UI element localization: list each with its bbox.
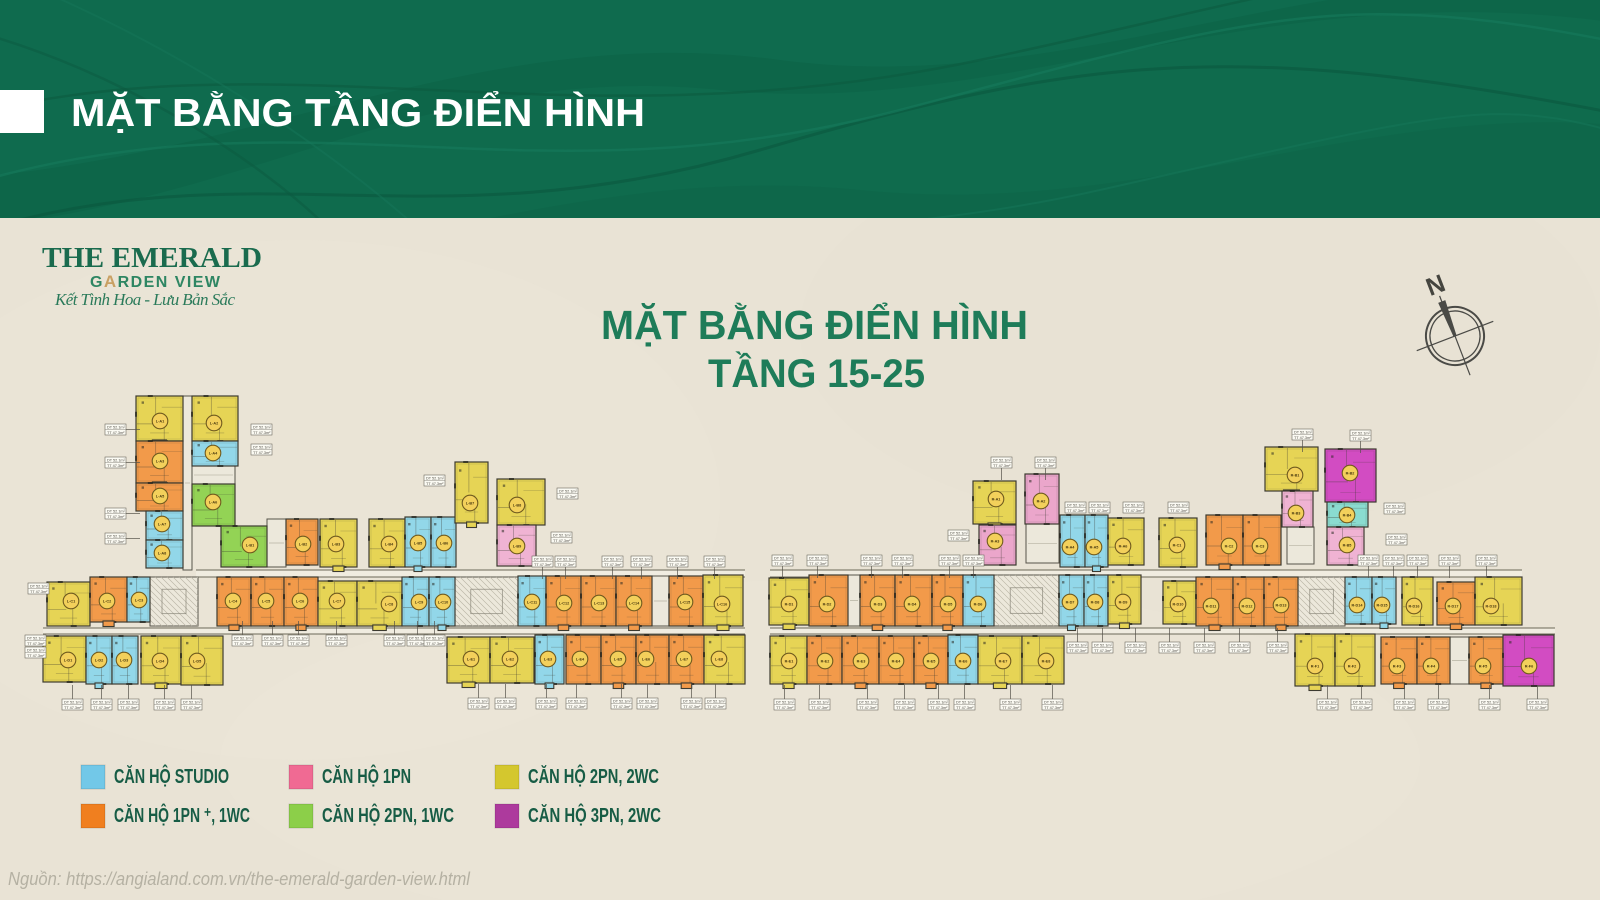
svg-text:R-E6: R-E6 (959, 660, 968, 664)
svg-text:L-C4: L-C4 (229, 600, 238, 604)
svg-text:TT 47.3m²: TT 47.3m² (553, 539, 571, 543)
svg-text:DT 52.1m²: DT 52.1m² (1161, 644, 1180, 648)
svg-text:L-C9: L-C9 (415, 601, 423, 605)
svg-text:DT 52.1m²: DT 52.1m² (107, 426, 126, 430)
svg-text:TT 47.3m²: TT 47.3m² (107, 540, 125, 544)
svg-text:TT 47.3m²: TT 47.3m² (1231, 649, 1249, 653)
svg-text:DT 52.1m²: DT 52.1m² (1353, 701, 1372, 705)
svg-text:L-B3: L-B3 (332, 543, 340, 547)
svg-text:L-E2: L-E2 (506, 658, 514, 662)
svg-text:TT 47.3m²: TT 47.3m² (941, 562, 959, 566)
svg-text:R-F6: R-F6 (1525, 665, 1533, 669)
svg-text:DT 52.1m²: DT 52.1m² (183, 701, 202, 705)
svg-text:L-A1: L-A1 (156, 420, 164, 424)
svg-text:R-D10: R-D10 (1173, 603, 1184, 607)
svg-text:TT 47.3m²: TT 47.3m² (1441, 562, 1459, 566)
svg-text:DT 52.1m²: DT 52.1m² (613, 700, 632, 704)
svg-text:DT 52.1m²: DT 52.1m² (956, 701, 975, 705)
svg-text:TT 47.3m²: TT 47.3m² (1294, 436, 1312, 440)
svg-text:L-A5: L-A5 (156, 495, 164, 499)
svg-text:DT 52.1m²: DT 52.1m² (30, 585, 49, 589)
svg-text:DT 52.1m²: DT 52.1m² (950, 532, 969, 536)
svg-text:DT 52.1m²: DT 52.1m² (1125, 504, 1144, 508)
svg-text:DT 52.1m²: DT 52.1m² (965, 557, 984, 561)
svg-text:L-C6: L-C6 (296, 600, 304, 604)
svg-text:TT 47.3m²: TT 47.3m² (811, 706, 829, 710)
svg-text:TT 47.3m²: TT 47.3m² (1388, 541, 1406, 545)
svg-text:L-C2: L-C2 (103, 600, 111, 604)
svg-text:R-D5: R-D5 (944, 603, 953, 607)
svg-text:TT 47.3m²: TT 47.3m² (27, 642, 45, 646)
svg-text:DT 52.1m²: DT 52.1m² (941, 557, 960, 561)
svg-text:TT 47.3m²: TT 47.3m² (107, 515, 125, 519)
svg-text:L-B7: L-B7 (466, 502, 474, 506)
svg-text:TT 47.3m²: TT 47.3m² (253, 451, 271, 455)
svg-text:R-D11: R-D11 (1206, 605, 1217, 609)
svg-text:R-E7: R-E7 (999, 660, 1008, 664)
svg-text:R-D8: R-D8 (1091, 601, 1100, 605)
svg-text:DT 52.1m²: DT 52.1m² (1478, 557, 1497, 561)
svg-text:DT 52.1m²: DT 52.1m² (557, 558, 576, 562)
svg-text:DT 52.1m²: DT 52.1m² (93, 701, 112, 705)
svg-text:TT 47.3m²: TT 47.3m² (1069, 649, 1087, 653)
svg-text:R-D4: R-D4 (908, 603, 918, 607)
svg-text:DT 52.1m²: DT 52.1m² (669, 558, 688, 562)
svg-text:DT 52.1m²: DT 52.1m² (774, 557, 793, 561)
svg-text:DT 52.1m²: DT 52.1m² (894, 557, 913, 561)
svg-text:DT 52.1m²: DT 52.1m² (1319, 701, 1338, 705)
svg-text:TT 47.3m²: TT 47.3m² (290, 642, 308, 646)
svg-text:L-E7: L-E7 (680, 658, 688, 662)
svg-text:L-E3: L-E3 (544, 658, 552, 662)
svg-text:R-B3: R-B3 (1292, 512, 1301, 516)
svg-text:DT 52.1m²: DT 52.1m² (253, 426, 272, 430)
svg-text:L-B8: L-B8 (513, 504, 521, 508)
svg-text:R-D18: R-D18 (1486, 605, 1497, 609)
svg-text:DT 52.1m²: DT 52.1m² (1481, 701, 1500, 705)
svg-text:R-D13: R-D13 (1276, 604, 1287, 608)
svg-text:DT 52.1m²: DT 52.1m² (559, 490, 578, 494)
svg-text:TT 47.3m²: TT 47.3m² (1319, 706, 1337, 710)
svg-text:TT 47.3m²: TT 47.3m² (993, 464, 1011, 468)
svg-text:DT 52.1m²: DT 52.1m² (809, 557, 828, 561)
svg-text:DT 52.1m²: DT 52.1m² (1269, 644, 1288, 648)
svg-text:DT 52.1m²: DT 52.1m² (120, 701, 139, 705)
svg-text:TT 47.3m²: TT 47.3m² (1529, 706, 1547, 710)
svg-text:R-D16: R-D16 (1409, 605, 1420, 609)
svg-text:R-A3: R-A3 (991, 540, 1000, 544)
svg-text:L-E8: L-E8 (715, 658, 723, 662)
svg-text:DT 52.1m²: DT 52.1m² (993, 459, 1012, 463)
svg-text:L-D5: L-D5 (193, 660, 201, 664)
svg-text:DT 52.1m²: DT 52.1m² (107, 510, 126, 514)
svg-text:R-A2: R-A2 (1037, 500, 1046, 504)
svg-text:TT 47.3m²: TT 47.3m² (950, 537, 968, 541)
svg-text:L-D4: L-D4 (156, 660, 165, 664)
svg-text:R-B5: R-B5 (1343, 544, 1352, 548)
svg-text:TT 47.3m²: TT 47.3m² (156, 706, 174, 710)
svg-text:L-B6: L-B6 (440, 542, 448, 546)
svg-text:CĂN HỘ 1PN: CĂN HỘ 1PN (322, 764, 411, 788)
svg-text:DT 52.1m²: DT 52.1m² (386, 637, 405, 641)
svg-text:DT 52.1m²: DT 52.1m² (1294, 431, 1313, 435)
svg-text:TT 47.3m²: TT 47.3m² (896, 706, 914, 710)
svg-text:TT 47.3m²: TT 47.3m² (809, 562, 827, 566)
svg-text:TT 47.3m²: TT 47.3m² (107, 431, 125, 435)
svg-text:DT 52.1m²: DT 52.1m² (1352, 432, 1371, 436)
svg-text:TT 47.3m²: TT 47.3m² (1125, 509, 1143, 513)
svg-text:TT 47.3m²: TT 47.3m² (1481, 706, 1499, 710)
svg-text:DT 52.1m²: DT 52.1m² (1067, 504, 1086, 508)
svg-text:CĂN HỘ 1PN ⁺, 1WC: CĂN HỘ 1PN ⁺, 1WC (114, 803, 250, 827)
svg-text:TT 47.3m²: TT 47.3m² (1161, 649, 1179, 653)
svg-text:DT 52.1m²: DT 52.1m² (107, 535, 126, 539)
svg-text:R-B4: R-B4 (1343, 514, 1353, 518)
svg-text:DT 52.1m²: DT 52.1m² (497, 700, 516, 704)
svg-text:TT 47.3m²: TT 47.3m² (1067, 509, 1085, 513)
svg-text:TT 47.3m²: TT 47.3m² (27, 654, 45, 658)
svg-text:DT 52.1m²: DT 52.1m² (264, 637, 283, 641)
svg-text:DT 52.1m²: DT 52.1m² (426, 637, 445, 641)
svg-text:TT 47.3m²: TT 47.3m² (774, 562, 792, 566)
svg-text:L-C8: L-C8 (385, 603, 393, 607)
svg-text:TT 47.3m²: TT 47.3m² (386, 642, 404, 646)
svg-text:DT 52.1m²: DT 52.1m² (534, 558, 553, 562)
svg-text:DT 52.1m²: DT 52.1m² (568, 700, 587, 704)
svg-text:TT 47.3m²: TT 47.3m² (328, 642, 346, 646)
svg-text:TT 47.3m²: TT 47.3m² (1127, 649, 1145, 653)
svg-text:L-A6: L-A6 (209, 501, 217, 505)
svg-text:L-B2: L-B2 (299, 543, 307, 547)
svg-text:TT 47.3m²: TT 47.3m² (706, 563, 724, 567)
svg-text:R-F1: R-F1 (1311, 665, 1319, 669)
svg-text:R-D2: R-D2 (823, 603, 832, 607)
svg-text:TT 47.3m²: TT 47.3m² (965, 562, 983, 566)
svg-text:DT 52.1m²: DT 52.1m² (706, 558, 725, 562)
svg-text:R-D14: R-D14 (1352, 604, 1364, 608)
svg-text:TT 47.3m²: TT 47.3m² (1091, 509, 1109, 513)
svg-text:DT 52.1m²: DT 52.1m² (1002, 701, 1021, 705)
svg-text:R-F4: R-F4 (1427, 665, 1436, 669)
svg-text:TT 47.3m²: TT 47.3m² (1037, 464, 1055, 468)
svg-text:TT 47.3m²: TT 47.3m² (707, 705, 725, 709)
svg-text:L-E6: L-E6 (642, 658, 650, 662)
svg-text:R-C1: R-C1 (1173, 544, 1182, 548)
svg-text:CĂN HỘ 3PN, 2WC: CĂN HỘ 3PN, 2WC (528, 803, 661, 827)
svg-text:L-C1: L-C1 (67, 600, 75, 604)
svg-text:R-D7: R-D7 (1066, 601, 1075, 605)
svg-text:CĂN HỘ 2PN, 1WC: CĂN HỘ 2PN, 1WC (322, 803, 454, 827)
svg-text:TẦNG 15-25: TẦNG 15-25 (708, 350, 925, 396)
svg-text:TT 47.3m²: TT 47.3m² (538, 705, 556, 709)
svg-text:L-C5: L-C5 (262, 600, 270, 604)
svg-text:DT 52.1m²: DT 52.1m² (896, 701, 915, 705)
svg-text:L-E5: L-E5 (614, 658, 622, 662)
svg-text:R-B1: R-B1 (1291, 474, 1300, 478)
svg-text:DT 52.1m²: DT 52.1m² (1094, 644, 1113, 648)
svg-text:DT 52.1m²: DT 52.1m² (156, 701, 175, 705)
svg-text:R-F5: R-F5 (1479, 665, 1487, 669)
svg-text:L-C16: L-C16 (717, 603, 728, 607)
svg-text:R-A6: R-A6 (1119, 545, 1128, 549)
svg-text:TT 47.3m²: TT 47.3m² (1478, 562, 1496, 566)
svg-text:TT 47.3m²: TT 47.3m² (107, 464, 125, 468)
svg-text:DT 52.1m²: DT 52.1m² (234, 637, 253, 641)
svg-text:TT 47.3m²: TT 47.3m² (1352, 437, 1370, 441)
svg-text:R-D17: R-D17 (1448, 605, 1459, 609)
svg-text:DT 52.1m²: DT 52.1m² (1385, 557, 1404, 561)
svg-text:R-D3: R-D3 (874, 603, 883, 607)
svg-text:GARDEN VIEW: GARDEN VIEW (90, 272, 221, 291)
svg-text:DT 52.1m²: DT 52.1m² (107, 459, 126, 463)
svg-text:DT 52.1m²: DT 52.1m² (776, 701, 795, 705)
svg-text:L-C12: L-C12 (559, 602, 570, 606)
svg-text:DT 52.1m²: DT 52.1m² (64, 701, 83, 705)
svg-text:R-D6: R-D6 (974, 603, 983, 607)
svg-text:TT 47.3m²: TT 47.3m² (93, 706, 111, 710)
svg-text:CĂN HỘ 2PN, 2WC: CĂN HỘ 2PN, 2WC (528, 764, 659, 788)
svg-text:DT 52.1m²: DT 52.1m² (1386, 505, 1405, 509)
svg-text:DT 52.1m²: DT 52.1m² (1127, 644, 1146, 648)
svg-text:TT 47.3m²: TT 47.3m² (64, 706, 82, 710)
svg-text:L-D2: L-D2 (95, 659, 103, 663)
svg-text:L-A2: L-A2 (210, 422, 218, 426)
svg-text:Kết Tình Hoa - Lưu Bản Sắc: Kết Tình Hoa - Lưu Bản Sắc (54, 290, 235, 309)
svg-text:L-C14: L-C14 (629, 602, 640, 606)
svg-text:R-A1: R-A1 (992, 498, 1001, 502)
svg-text:L-C13: L-C13 (594, 602, 605, 606)
svg-text:TT 47.3m²: TT 47.3m² (930, 706, 948, 710)
svg-text:R-C3: R-C3 (1256, 545, 1265, 549)
svg-text:R-E5: R-E5 (927, 660, 936, 664)
svg-text:R-A5: R-A5 (1090, 546, 1099, 550)
svg-text:TT 47.3m²: TT 47.3m² (1044, 706, 1062, 710)
svg-text:R-D1: R-D1 (785, 603, 794, 607)
svg-text:TT 47.3m²: TT 47.3m² (1396, 706, 1414, 710)
svg-text:L-B4: L-B4 (385, 543, 394, 547)
svg-text:DT 52.1m²: DT 52.1m² (604, 558, 623, 562)
svg-text:L-B5: L-B5 (414, 542, 422, 546)
svg-text:DT 52.1m²: DT 52.1m² (470, 700, 489, 704)
svg-text:R-D15: R-D15 (1377, 604, 1388, 608)
svg-text:TT 47.3m²: TT 47.3m² (1094, 649, 1112, 653)
svg-text:TT 47.3m²: TT 47.3m² (894, 562, 912, 566)
svg-text:TT 47.3m²: TT 47.3m² (1196, 649, 1214, 653)
svg-text:DT 52.1m²: DT 52.1m² (27, 649, 46, 653)
svg-text:TT 47.3m²: TT 47.3m² (497, 705, 515, 709)
svg-text:TT 47.3m²: TT 47.3m² (1385, 562, 1403, 566)
svg-text:R-F2: R-F2 (1348, 665, 1356, 669)
svg-text:R-E8: R-E8 (1042, 660, 1051, 664)
svg-text:DT 52.1m²: DT 52.1m² (538, 700, 557, 704)
svg-text:DT 52.1m²: DT 52.1m² (290, 637, 309, 641)
svg-text:L-E1: L-E1 (467, 658, 475, 662)
svg-text:L-A4: L-A4 (209, 452, 218, 456)
svg-text:CĂN HỘ STUDIO: CĂN HỘ STUDIO (114, 764, 229, 788)
svg-text:DT 52.1m²: DT 52.1m² (1044, 701, 1063, 705)
svg-text:TT 47.3m²: TT 47.3m² (426, 482, 444, 486)
svg-text:TT 47.3m²: TT 47.3m² (1360, 562, 1378, 566)
svg-text:DT 52.1m²: DT 52.1m² (639, 700, 658, 704)
svg-text:TT 47.3m²: TT 47.3m² (120, 706, 138, 710)
svg-text:L-D1: L-D1 (64, 659, 72, 663)
svg-text:TT 47.3m²: TT 47.3m² (1170, 509, 1188, 513)
svg-text:MẶT BẰNG ĐIỂN HÌNH: MẶT BẰNG ĐIỂN HÌNH (601, 301, 1028, 348)
svg-text:TT 47.3m²: TT 47.3m² (776, 706, 794, 710)
svg-text:L-C11: L-C11 (527, 601, 537, 605)
svg-text:TT 47.3m²: TT 47.3m² (234, 642, 252, 646)
svg-text:TT 47.3m²: TT 47.3m² (30, 590, 48, 594)
svg-text:TT 47.3m²: TT 47.3m² (1409, 562, 1427, 566)
svg-text:L-B1: L-B1 (246, 544, 254, 548)
svg-text:TT 47.3m²: TT 47.3m² (863, 562, 881, 566)
svg-text:TT 47.3m²: TT 47.3m² (1353, 706, 1371, 710)
svg-text:TT 47.3m²: TT 47.3m² (1430, 706, 1448, 710)
svg-text:L-C3: L-C3 (135, 599, 143, 603)
svg-text:TT 47.3m²: TT 47.3m² (183, 706, 201, 710)
svg-text:TT 47.3m²: TT 47.3m² (253, 431, 271, 435)
svg-text:R-D9: R-D9 (1119, 601, 1128, 605)
svg-text:L-A3: L-A3 (156, 460, 164, 464)
svg-text:R-E2: R-E2 (821, 660, 830, 664)
svg-text:TT 47.3m²: TT 47.3m² (604, 563, 622, 567)
svg-text:DT 52.1m²: DT 52.1m² (253, 446, 272, 450)
svg-text:DT 52.1m²: DT 52.1m² (1388, 536, 1407, 540)
svg-text:R-D12: R-D12 (1242, 605, 1253, 609)
svg-text:TT 47.3m²: TT 47.3m² (568, 705, 586, 709)
svg-text:DT 52.1m²: DT 52.1m² (1396, 701, 1415, 705)
svg-text:THE EMERALD: THE EMERALD (42, 242, 262, 274)
svg-text:R-E3: R-E3 (857, 660, 866, 664)
svg-text:L-C10: L-C10 (438, 601, 449, 605)
svg-text:DT 52.1m²: DT 52.1m² (683, 700, 702, 704)
svg-text:DT 52.1m²: DT 52.1m² (1441, 557, 1460, 561)
svg-text:DT 52.1m²: DT 52.1m² (1409, 557, 1428, 561)
svg-text:TT 47.3m²: TT 47.3m² (557, 563, 575, 567)
svg-text:R-F3: R-F3 (1393, 665, 1401, 669)
svg-text:R-B2: R-B2 (1346, 472, 1355, 476)
svg-text:TT 47.3m²: TT 47.3m² (264, 642, 282, 646)
svg-text:L-C7: L-C7 (333, 600, 341, 604)
svg-text:R-C2: R-C2 (1225, 545, 1234, 549)
svg-text:L-E4: L-E4 (576, 658, 585, 662)
svg-text:TT 47.3m²: TT 47.3m² (470, 705, 488, 709)
svg-text:DT 52.1m²: DT 52.1m² (553, 534, 572, 538)
svg-text:L-B9: L-B9 (513, 545, 521, 549)
svg-text:TT 47.3m²: TT 47.3m² (859, 706, 877, 710)
svg-text:DT 52.1m²: DT 52.1m² (1170, 504, 1189, 508)
svg-text:DT 52.1m²: DT 52.1m² (811, 701, 830, 705)
svg-text:DT 52.1m²: DT 52.1m² (930, 701, 949, 705)
svg-text:TT 47.3m²: TT 47.3m² (669, 563, 687, 567)
svg-text:TT 47.3m²: TT 47.3m² (639, 705, 657, 709)
svg-text:TT 47.3m²: TT 47.3m² (1002, 706, 1020, 710)
svg-text:DT 52.1m²: DT 52.1m² (1430, 701, 1449, 705)
svg-text:DT 52.1m²: DT 52.1m² (426, 477, 445, 481)
svg-text:TT 47.3m²: TT 47.3m² (683, 705, 701, 709)
svg-text:DT 52.1m²: DT 52.1m² (1037, 459, 1056, 463)
svg-text:DT 52.1m²: DT 52.1m² (328, 637, 347, 641)
svg-text:DT 52.1m²: DT 52.1m² (1196, 644, 1215, 648)
svg-text:DT 52.1m²: DT 52.1m² (1069, 644, 1088, 648)
svg-text:R-E1: R-E1 (785, 660, 794, 664)
svg-text:DT 52.1m²: DT 52.1m² (633, 558, 652, 562)
svg-text:DT 52.1m²: DT 52.1m² (1529, 701, 1548, 705)
svg-text:R-E4: R-E4 (892, 660, 902, 664)
svg-text:TT 47.3m²: TT 47.3m² (956, 706, 974, 710)
svg-text:R-A4: R-A4 (1066, 546, 1076, 550)
svg-text:TT 47.3m²: TT 47.3m² (1269, 649, 1287, 653)
svg-text:TT 47.3m²: TT 47.3m² (1386, 510, 1404, 514)
svg-text:TT 47.3m²: TT 47.3m² (534, 563, 552, 567)
svg-text:DT 52.1m²: DT 52.1m² (859, 701, 878, 705)
svg-text:TT 47.3m²: TT 47.3m² (613, 705, 631, 709)
svg-text:MẶT BẰNG TẦNG ĐIỂN HÌNH: MẶT BẰNG TẦNG ĐIỂN HÌNH (71, 90, 645, 135)
svg-text:DT 52.1m²: DT 52.1m² (1360, 557, 1379, 561)
svg-text:L-A8: L-A8 (158, 552, 166, 556)
svg-text:DT 52.1m²: DT 52.1m² (707, 700, 726, 704)
svg-text:DT 52.1m²: DT 52.1m² (27, 637, 46, 641)
svg-text:TT 47.3m²: TT 47.3m² (633, 563, 651, 567)
svg-text:TT 47.3m²: TT 47.3m² (426, 642, 444, 646)
svg-text:L-D3: L-D3 (120, 659, 128, 663)
svg-text:L-C15: L-C15 (680, 601, 691, 605)
svg-text:L-A7: L-A7 (158, 523, 166, 527)
svg-text:DT 52.1m²: DT 52.1m² (863, 557, 882, 561)
svg-text:Nguồn: https://angialand.com.v: Nguồn: https://angialand.com.vn/the-emer… (8, 869, 471, 889)
svg-text:TT 47.3m²: TT 47.3m² (559, 495, 577, 499)
svg-text:DT 52.1m²: DT 52.1m² (1091, 504, 1110, 508)
svg-text:DT 52.1m²: DT 52.1m² (1231, 644, 1250, 648)
